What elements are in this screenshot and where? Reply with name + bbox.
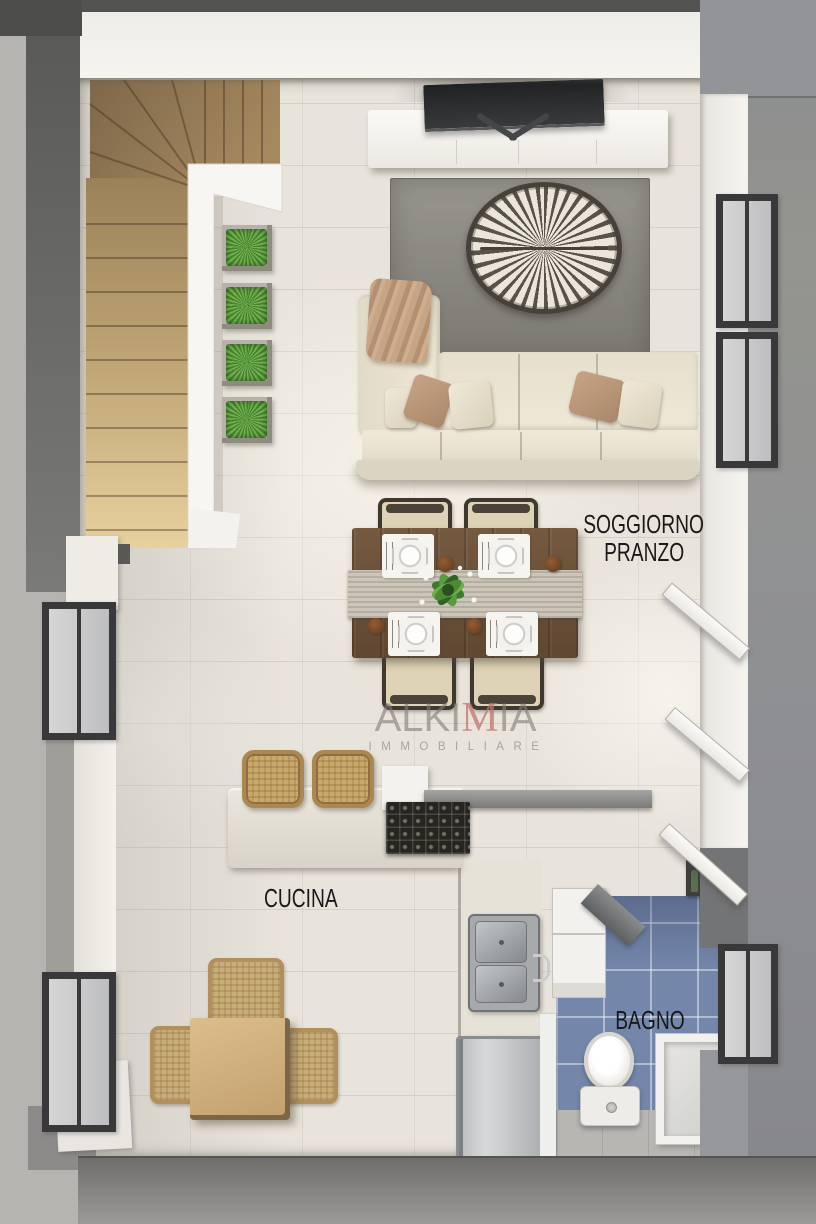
brand-accent-m: M <box>461 695 498 741</box>
wooden-bowl <box>368 618 384 634</box>
window <box>42 602 116 740</box>
wall-pier <box>46 720 74 980</box>
cushion-gap <box>520 432 522 462</box>
chair-back <box>386 504 444 513</box>
watermark-tagline: IMMOBILIARE <box>348 741 563 753</box>
brand-prefix: ALKI <box>375 696 462 740</box>
chair-back <box>472 504 530 513</box>
cushion-gap <box>518 354 520 430</box>
drain <box>499 940 504 945</box>
centerpiece-plant <box>408 560 488 622</box>
living-label-line2: PRANZO <box>604 538 684 566</box>
console-divider <box>518 140 519 164</box>
cutlery <box>490 620 497 648</box>
coffee-table <box>466 182 622 314</box>
console-divider <box>596 140 597 164</box>
watermark: ALKIMIA IMMOBILIARE <box>348 698 563 753</box>
sofa-seat <box>362 430 698 464</box>
window-mullion <box>745 201 749 321</box>
cutlery <box>386 542 393 570</box>
wall-pier <box>66 536 118 610</box>
cutlery <box>392 620 399 648</box>
window <box>42 972 116 1132</box>
sink-basin <box>475 965 527 1003</box>
wall-pier <box>74 720 116 980</box>
window-mullion <box>746 951 750 1057</box>
breakfast-table <box>190 1018 290 1120</box>
pillow <box>617 379 663 429</box>
brand-suffix: IA <box>499 696 537 740</box>
kitchen-bath-wall <box>540 1014 556 1158</box>
outer-wall-left <box>26 10 80 592</box>
console-divider <box>456 140 457 164</box>
plant <box>226 401 267 438</box>
planter <box>222 397 272 443</box>
sink-basin <box>475 921 527 963</box>
plant <box>226 287 267 324</box>
plate <box>488 538 524 574</box>
wall-top <box>78 12 702 78</box>
coffee-table-seam <box>480 247 609 250</box>
tv <box>423 79 605 132</box>
window-mullion <box>77 609 81 733</box>
outer-wall-bottom <box>78 1156 816 1224</box>
bar-stool <box>312 750 374 808</box>
room-label-bathroom: BAGNO <box>592 1006 708 1034</box>
sofa-base <box>356 460 700 480</box>
bathroom-label: BAGNO <box>615 1006 685 1034</box>
window <box>716 332 778 468</box>
apartment-floor-plan: SOGGIORNO PRANZO CUCINA BAGNO ALKIMIA IM… <box>0 0 816 1224</box>
bar-stool <box>242 750 304 808</box>
plant <box>226 229 267 266</box>
planter <box>222 225 272 271</box>
window <box>716 194 778 328</box>
cushion-gap <box>600 432 602 462</box>
throw-blanket <box>365 278 433 364</box>
toilet-tank <box>580 1086 640 1126</box>
toilet <box>584 1032 634 1090</box>
bathroom-wall-pier <box>700 1050 748 1158</box>
kitchen-sink <box>468 914 540 1012</box>
outer-wall-corner <box>700 0 816 98</box>
watermark-brand: ALKIMIA <box>348 698 563 738</box>
room-label-living: SOGGIORNO PRANZO <box>558 510 730 566</box>
plant <box>226 344 267 381</box>
kitchen-label: CUCINA <box>264 884 338 912</box>
outer-wall-corner <box>0 0 82 36</box>
faucet <box>533 954 550 982</box>
cushion-gap <box>440 432 442 462</box>
window-mullion <box>745 339 749 461</box>
flush-button <box>606 1102 617 1113</box>
bathroom-window <box>718 944 778 1064</box>
pillow <box>448 380 495 430</box>
cooktop <box>386 802 470 854</box>
planter <box>222 340 272 386</box>
planter <box>222 283 272 329</box>
plate <box>496 616 532 652</box>
window-mullion <box>77 979 81 1125</box>
living-label-line1: SOGGIORNO <box>584 510 705 538</box>
washer <box>552 934 606 998</box>
drain <box>499 982 504 987</box>
room-label-kitchen: CUCINA <box>240 884 362 912</box>
place-setting <box>486 612 538 656</box>
bottle <box>691 870 698 892</box>
refrigerator <box>456 1036 550 1160</box>
